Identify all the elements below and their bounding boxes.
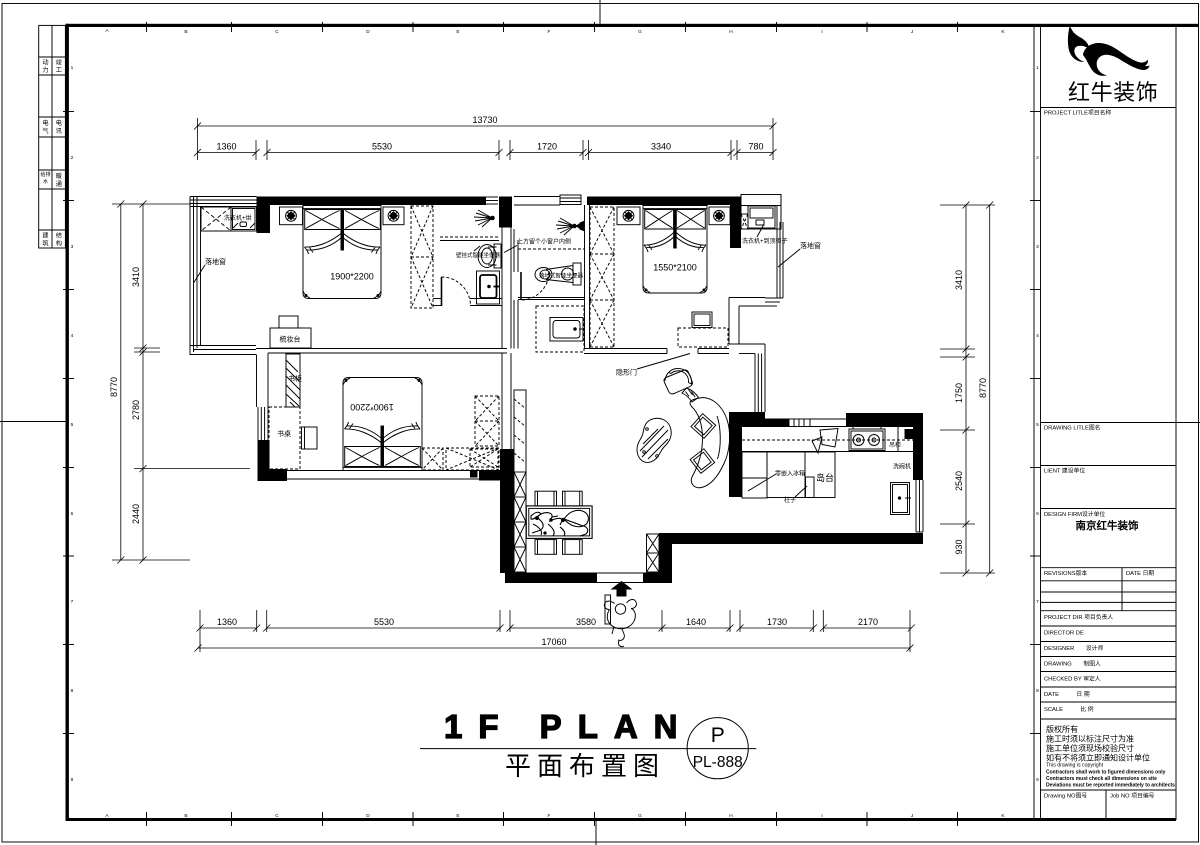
svg-text:施工时须以标注尺寸为准: 施工时须以标注尺寸为准 bbox=[1046, 734, 1134, 744]
svg-text:2170: 2170 bbox=[858, 617, 878, 627]
svg-text:5530: 5530 bbox=[374, 617, 394, 627]
svg-text:1900*2200: 1900*2200 bbox=[330, 272, 374, 282]
svg-text:C: C bbox=[275, 29, 279, 35]
svg-text:5: 5 bbox=[1036, 422, 1039, 428]
svg-text:7: 7 bbox=[71, 599, 74, 605]
svg-text:电: 电 bbox=[56, 119, 62, 127]
svg-text:南京红牛装饰: 南京红牛装饰 bbox=[1076, 519, 1139, 532]
svg-text:D: D bbox=[366, 29, 370, 35]
svg-text:5530: 5530 bbox=[372, 142, 392, 152]
svg-text:结: 结 bbox=[56, 232, 62, 240]
svg-text:REVISIONS版本: REVISIONS版本 bbox=[1044, 569, 1087, 577]
svg-text:1: 1 bbox=[1036, 65, 1039, 71]
svg-text:1730: 1730 bbox=[767, 617, 787, 627]
svg-text:H: H bbox=[729, 29, 733, 35]
svg-text:6: 6 bbox=[1036, 511, 1039, 517]
svg-text:给排: 给排 bbox=[40, 171, 50, 178]
svg-text:吊柜: 吊柜 bbox=[889, 441, 901, 449]
svg-text:如有不将须立即通知设计单位: 如有不将须立即通知设计单位 bbox=[1046, 753, 1150, 763]
svg-text:F: F bbox=[548, 29, 551, 35]
svg-text:梳妆台: 梳妆台 bbox=[280, 335, 301, 344]
svg-text:柱子: 柱子 bbox=[784, 496, 796, 504]
svg-text:2440: 2440 bbox=[131, 504, 141, 524]
svg-text:3410: 3410 bbox=[954, 270, 964, 290]
svg-text:竣: 竣 bbox=[56, 59, 62, 67]
svg-text:8: 8 bbox=[1036, 688, 1039, 694]
svg-text:4: 4 bbox=[1036, 333, 1039, 339]
svg-text:780: 780 bbox=[748, 142, 763, 152]
svg-text:PROJECT DIR 项目负责人: PROJECT DIR 项目负责人 bbox=[1044, 613, 1113, 621]
svg-text:洗碗机: 洗碗机 bbox=[893, 463, 911, 471]
svg-text:3340: 3340 bbox=[651, 142, 671, 152]
svg-text:红牛装饰: 红牛装饰 bbox=[1068, 80, 1158, 105]
svg-text:8770: 8770 bbox=[109, 377, 119, 397]
svg-text:DESIGNER 设计师: DESIGNER 设计师 bbox=[1044, 644, 1103, 652]
svg-text:G: G bbox=[638, 29, 642, 35]
svg-text:Drawing NO图号: Drawing NO图号 bbox=[1044, 792, 1087, 800]
svg-text:零嵌入冰箱: 零嵌入冰箱 bbox=[775, 470, 805, 478]
svg-text:落地窗: 落地窗 bbox=[800, 241, 821, 250]
svg-text:建: 建 bbox=[42, 232, 48, 240]
svg-text:B: B bbox=[184, 813, 187, 819]
svg-text:1900*2200: 1900*2200 bbox=[350, 402, 394, 412]
svg-text:9: 9 bbox=[71, 777, 74, 783]
svg-text:Job NO 项目编号: Job NO 项目编号 bbox=[1110, 792, 1155, 800]
svg-text:PL-888: PL-888 bbox=[693, 754, 743, 771]
svg-text:隐形门: 隐形门 bbox=[616, 368, 637, 377]
svg-text:工: 工 bbox=[56, 67, 62, 74]
svg-text:讯: 讯 bbox=[56, 127, 62, 135]
svg-text:力: 力 bbox=[42, 66, 48, 74]
svg-text:气: 气 bbox=[42, 127, 48, 135]
svg-text:DIRECTOR DE: DIRECTOR DE bbox=[1044, 631, 1084, 637]
svg-text:动: 动 bbox=[42, 60, 48, 67]
svg-text:B: B bbox=[184, 29, 187, 35]
svg-text:1F PLAN: 1F PLAN bbox=[444, 708, 694, 745]
svg-text:LIENT 建设单位: LIENT 建设单位 bbox=[1044, 467, 1085, 475]
svg-text:2: 2 bbox=[1036, 155, 1039, 161]
svg-text:Contractors shall work to figu: Contractors shall work to figured dimens… bbox=[1046, 770, 1166, 776]
svg-text:7: 7 bbox=[1036, 599, 1039, 605]
svg-text:1640: 1640 bbox=[686, 617, 706, 627]
svg-text:4: 4 bbox=[71, 333, 74, 339]
svg-text:SCALE 比 例: SCALE 比 例 bbox=[1044, 705, 1094, 713]
svg-text:I: I bbox=[821, 813, 822, 819]
svg-text:9: 9 bbox=[1036, 777, 1039, 783]
svg-text:DATE 日期: DATE 日期 bbox=[1126, 570, 1154, 577]
svg-text:2540: 2540 bbox=[954, 471, 964, 491]
svg-text:电: 电 bbox=[42, 119, 48, 127]
svg-text:2780: 2780 bbox=[131, 400, 141, 420]
svg-text:版权所有: 版权所有 bbox=[1046, 724, 1078, 734]
svg-text:平面布置图: 平面布置图 bbox=[505, 751, 665, 781]
svg-text:通: 通 bbox=[56, 180, 62, 188]
svg-text:Deviations must be reported im: Deviations must be reported immediately … bbox=[1046, 783, 1175, 789]
svg-text:930: 930 bbox=[954, 539, 964, 554]
svg-text:1360: 1360 bbox=[217, 617, 237, 627]
svg-text:E: E bbox=[456, 29, 459, 35]
svg-text:3410: 3410 bbox=[131, 267, 141, 287]
svg-text:C: C bbox=[275, 813, 279, 819]
svg-text:Contractors must check all dim: Contractors must check all dimensions on… bbox=[1046, 776, 1157, 782]
svg-text:CHECKED BY 审定人: CHECKED BY 审定人 bbox=[1044, 675, 1101, 683]
svg-text:3: 3 bbox=[71, 244, 74, 250]
svg-text:施工单位须现场校验尺寸: 施工单位须现场校验尺寸 bbox=[1046, 743, 1134, 753]
svg-text:岛台: 岛台 bbox=[816, 472, 834, 483]
svg-text:D: D bbox=[366, 813, 370, 819]
svg-text:洗衣机+到顶柜子: 洗衣机+到顶柜子 bbox=[742, 237, 788, 245]
svg-text:This drawing is copyright: This drawing is copyright bbox=[1046, 763, 1104, 769]
svg-text:17060: 17060 bbox=[541, 637, 566, 647]
svg-text:上方留个小窗户内侧: 上方留个小窗户内侧 bbox=[517, 238, 571, 246]
svg-text:13730: 13730 bbox=[472, 115, 497, 125]
svg-text:H: H bbox=[729, 813, 733, 819]
svg-text:暖: 暖 bbox=[56, 172, 62, 180]
svg-text:I: I bbox=[821, 29, 822, 35]
svg-text:1550*2100: 1550*2100 bbox=[653, 263, 697, 273]
svg-text:书柜: 书柜 bbox=[288, 374, 302, 383]
svg-text:F: F bbox=[548, 813, 551, 819]
svg-text:5: 5 bbox=[71, 422, 74, 428]
svg-text:E: E bbox=[456, 813, 459, 819]
svg-text:书桌: 书桌 bbox=[277, 429, 291, 438]
svg-text:2: 2 bbox=[71, 155, 74, 161]
svg-text:8770: 8770 bbox=[978, 378, 988, 398]
svg-text:DRAWING LITLE图名: DRAWING LITLE图名 bbox=[1044, 424, 1100, 432]
svg-text:1: 1 bbox=[71, 65, 74, 71]
svg-text:筑: 筑 bbox=[42, 240, 49, 248]
svg-text:G: G bbox=[638, 813, 642, 819]
svg-text:洗衣机+烘: 洗衣机+烘 bbox=[224, 214, 252, 222]
svg-text:1720: 1720 bbox=[537, 142, 557, 152]
svg-text:落地式智能坐便器: 落地式智能坐便器 bbox=[539, 272, 584, 280]
svg-text:6: 6 bbox=[71, 511, 74, 517]
svg-text:落地窗: 落地窗 bbox=[205, 257, 226, 266]
svg-text:PROJECT LITLE项目名称: PROJECT LITLE项目名称 bbox=[1044, 109, 1111, 117]
svg-text:P: P bbox=[711, 724, 725, 747]
svg-text:DESIGN FIRM设计单位: DESIGN FIRM设计单位 bbox=[1044, 510, 1105, 518]
svg-text:壁挂式智能坐便器: 壁挂式智能坐便器 bbox=[456, 251, 501, 259]
svg-text:3580: 3580 bbox=[576, 617, 596, 627]
svg-text:1750: 1750 bbox=[954, 383, 964, 403]
svg-text:水: 水 bbox=[43, 178, 48, 185]
svg-text:DATE 日 期: DATE 日 期 bbox=[1044, 691, 1090, 698]
svg-text:构: 构 bbox=[56, 240, 62, 248]
svg-text:1360: 1360 bbox=[216, 142, 236, 152]
svg-text:DRAWING 制图人: DRAWING 制图人 bbox=[1044, 660, 1101, 668]
svg-text:3: 3 bbox=[1036, 244, 1039, 250]
svg-text:8: 8 bbox=[71, 688, 74, 694]
